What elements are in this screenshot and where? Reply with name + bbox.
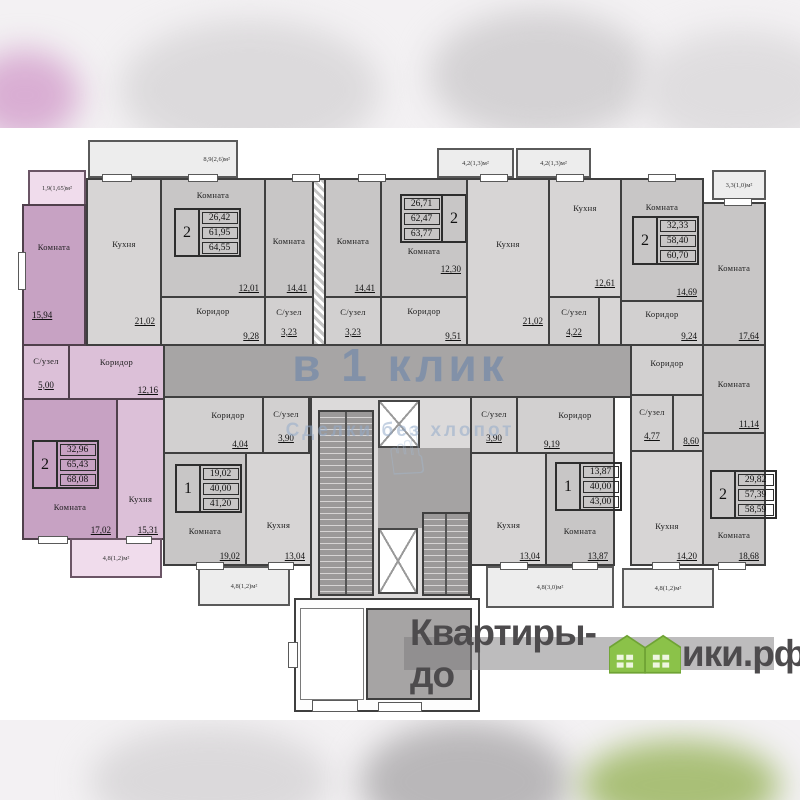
area-value: 63,77 xyxy=(404,228,440,240)
balcony-bottom-left: 4,8(1,2)м² xyxy=(198,566,290,606)
window-mark xyxy=(358,174,386,182)
room-label: Кухня xyxy=(88,239,160,249)
window-mark xyxy=(268,562,294,570)
room-area: 11,14 xyxy=(739,419,759,429)
balcony-area: 4,2(1,3)м² xyxy=(462,160,489,167)
apartment-spec-table: 1 19,02 40,00 41,20 xyxy=(175,464,242,513)
staircase-right xyxy=(422,512,470,596)
window-mark xyxy=(480,174,508,182)
room-label: Коридор xyxy=(382,306,466,316)
logo-text-suffix: ики.рф xyxy=(682,633,800,675)
area-value: 26,42 xyxy=(202,212,238,224)
room-area: 14,41 xyxy=(287,283,307,293)
pink-bath[interactable]: С/узел 5,00 xyxy=(22,344,70,400)
elevator-shaft-icon xyxy=(378,528,418,594)
area-value: 32,33 xyxy=(660,220,696,232)
apt-d-kitchen[interactable]: Кухня 13,04 xyxy=(245,452,312,566)
room-label: С/узел xyxy=(264,409,308,419)
room-label: С/узел xyxy=(550,307,598,317)
room-label: Комната xyxy=(704,379,764,389)
area-value: 58,59 xyxy=(738,504,774,516)
area-value: 58,40 xyxy=(660,235,696,247)
room-label: Кухня xyxy=(632,521,702,531)
balcony-area: 8,9(2,6)м² xyxy=(203,156,230,163)
area-value: 29,82 xyxy=(738,474,774,486)
area-value: 19,02 xyxy=(203,468,239,480)
room-label: Кухня xyxy=(472,520,545,530)
window-mark xyxy=(126,536,152,544)
apt-c-hall[interactable]: Коридор 9,24 xyxy=(620,300,704,346)
room-label: Комната xyxy=(24,502,116,512)
room-label: Комната xyxy=(24,242,84,252)
room-area: 17,02 xyxy=(91,525,111,535)
area-value: 40,00 xyxy=(203,483,239,495)
area-value: 62,47 xyxy=(404,213,440,225)
apt-a-kitchen[interactable]: Кухня 21,02 xyxy=(86,178,162,346)
balcony-bottom-right: 4,8(1,2)м² xyxy=(622,568,714,608)
floor-plan-page: 8,9(2,6)м² 4,2(1,3)м² 4,2(1,3)м² 3,3(1,0… xyxy=(0,0,800,800)
area-value: 41,20 xyxy=(203,498,239,510)
window-mark xyxy=(648,174,676,182)
balcony-area: 4,8(3,0)м² xyxy=(537,584,564,591)
apartment-spec-table: 2 32,33 58,40 60,70 xyxy=(632,216,699,265)
site-logo[interactable]: Квартиры-до ики.рф xyxy=(410,626,800,682)
room-label: Кухня xyxy=(118,494,163,504)
pink-room-2[interactable]: 2 32,96 65,43 68,08 Комната 17,02 xyxy=(22,398,118,540)
apartment-spec-table: 1 13,87 40,00 43,00 xyxy=(555,462,622,511)
balcony-area: 3,3(1,0)м² xyxy=(726,182,753,189)
room-label: Комната xyxy=(547,526,613,536)
room-label: Коридор xyxy=(162,306,264,316)
blurred-background-bottom xyxy=(0,716,800,800)
apartment-spec-table: 2 29,82 57,39 58,59 xyxy=(710,470,777,519)
apt-b-kitchen[interactable]: Кухня 21,02 xyxy=(466,178,550,346)
area-value: 61,95 xyxy=(202,227,238,239)
room-area: 8,60 xyxy=(683,436,699,446)
area-value: 57,39 xyxy=(738,489,774,501)
area-value: 13,87 xyxy=(583,466,619,478)
room-count: 2 xyxy=(34,442,56,487)
room-area: 3,23 xyxy=(266,327,312,337)
blurred-background-top xyxy=(0,0,800,128)
area-value: 68,08 xyxy=(60,474,96,486)
area-value: 40,00 xyxy=(583,481,619,493)
room-label: Комната xyxy=(382,246,466,256)
green-blur-blob xyxy=(580,740,780,800)
room-area: 9,24 xyxy=(681,331,697,341)
entrance-step xyxy=(378,702,422,712)
room-area: 12,16 xyxy=(138,385,158,395)
apt-c-room-2[interactable]: Комната 17,64 xyxy=(702,202,766,346)
window-mark xyxy=(724,198,752,206)
room-label: Комната xyxy=(162,190,264,200)
room-count: 2 xyxy=(634,218,656,263)
room-count: 2 xyxy=(443,196,465,241)
room-area: 19,02 xyxy=(220,551,240,561)
room-count: 2 xyxy=(176,210,198,255)
room-count: 1 xyxy=(557,464,579,509)
room-area: 12,30 xyxy=(441,264,461,274)
apt-c-kitchen[interactable]: Кухня 12,61 xyxy=(548,178,622,298)
window-mark xyxy=(500,562,528,570)
room-label: Комната xyxy=(326,236,380,246)
apt-b-room-2[interactable]: 2 26,71 62,47 63,77 Комната 12,30 xyxy=(380,178,468,298)
window-mark xyxy=(652,562,680,570)
balcony-pink-bottom: 4,8(1,2)м² xyxy=(70,538,162,578)
window-mark xyxy=(718,562,746,570)
room-area: 15,94 xyxy=(32,310,52,320)
window-mark xyxy=(572,562,598,570)
area-value: 64,55 xyxy=(202,242,238,254)
room-area: 21,02 xyxy=(523,316,543,326)
room-area: 5,00 xyxy=(24,380,68,390)
room-count: 2 xyxy=(712,472,734,517)
room-label: Комната xyxy=(704,263,764,273)
area-value: 65,43 xyxy=(60,459,96,471)
window-mark xyxy=(38,536,68,544)
apt-f-hall[interactable]: Коридор xyxy=(630,344,704,396)
green-houses-icon xyxy=(609,630,681,676)
room-label: С/узел xyxy=(472,409,516,419)
room-area: 18,68 xyxy=(739,551,759,561)
room-label: Комната xyxy=(622,202,702,212)
watermark-title: в 1 клик xyxy=(170,338,630,392)
room-label: Комната xyxy=(165,526,245,536)
apt-f-room-2[interactable]: 2 29,82 57,39 58,59 Комната 18,68 xyxy=(702,432,766,566)
room-label: С/узел xyxy=(24,356,68,366)
room-area: 14,20 xyxy=(677,551,697,561)
room-area: 21,02 xyxy=(135,316,155,326)
balcony-area: 4,8(1,2)м² xyxy=(103,555,130,562)
window-mark xyxy=(292,174,320,182)
room-label: Коридор xyxy=(194,410,262,420)
room-label: Коридор xyxy=(622,309,702,319)
window-mark xyxy=(188,174,218,182)
room-area: 15,31 xyxy=(138,525,158,535)
apt-f-bath[interactable]: С/узел 4,77 xyxy=(630,394,674,452)
apt-c-room-1[interactable]: Комната 2 32,33 58,40 60,70 14,69 xyxy=(620,178,704,302)
room-label: Кухня xyxy=(247,520,310,530)
window-mark xyxy=(556,174,584,182)
area-value: 60,70 xyxy=(660,250,696,262)
pink-hall[interactable]: Коридор 12,16 xyxy=(68,344,165,400)
area-value: 43,00 xyxy=(583,496,619,508)
apt-a-room-1[interactable]: Комната 2 26,42 61,95 64,55 12,01 xyxy=(160,178,266,298)
room-area: 4,77 xyxy=(632,431,672,441)
room-area: 13,04 xyxy=(285,551,305,561)
entrance-step xyxy=(312,700,358,712)
room-area: 12,61 xyxy=(595,278,615,288)
apt-f-kitchen[interactable]: Кухня 14,20 xyxy=(630,450,704,566)
balcony-top-right: 3,3(1,0)м² xyxy=(712,170,766,200)
room-area: 13,87 xyxy=(588,551,608,561)
apt-f-room-1[interactable]: Комната 11,14 xyxy=(702,344,766,434)
vestibule-room xyxy=(300,608,364,700)
window-mark xyxy=(102,174,132,182)
pink-room-1[interactable]: Комната 15,94 xyxy=(22,204,86,346)
room-area: 14,41 xyxy=(355,283,375,293)
room-label: Комната xyxy=(704,530,764,540)
area-value: 26,71 xyxy=(404,198,440,210)
pink-kitchen[interactable]: Кухня 15,31 xyxy=(116,398,165,540)
balcony-area: 4,2(1,3)м² xyxy=(540,160,567,167)
apt-e-kitchen[interactable]: Кухня 13,04 xyxy=(470,452,547,566)
balcony-bottom-mid: 4,8(3,0)м² xyxy=(486,566,614,608)
balcony-area: 1,9(1,65)м² xyxy=(42,185,72,192)
apt-f-hall-extension[interactable]: 8,60 xyxy=(672,394,704,452)
area-value: 32,96 xyxy=(60,444,96,456)
room-count: 1 xyxy=(177,466,199,511)
room-area: 4,22 xyxy=(550,327,598,337)
room-label: Комната xyxy=(266,236,312,246)
apt-b-room-1[interactable]: Комната 14,41 xyxy=(324,178,382,298)
room-label: Коридор xyxy=(537,410,613,420)
room-label: С/узел xyxy=(266,307,312,317)
apt-a-room-2[interactable]: Комната 14,41 xyxy=(264,178,314,298)
apartment-spec-table: 2 32,96 65,43 68,08 xyxy=(32,440,99,489)
apt-e-room[interactable]: 1 13,87 40,00 43,00 Комната 13,87 xyxy=(545,452,615,566)
apartment-spec-table: 2 26,71 62,47 63,77 xyxy=(400,194,467,243)
room-label: Коридор xyxy=(70,357,163,367)
apt-d-room[interactable]: 1 19,02 40,00 41,20 Комната 19,02 xyxy=(163,452,247,566)
balcony-area: 4,8(1,2)м² xyxy=(231,583,258,590)
window-mark xyxy=(18,252,26,290)
room-label: Кухня xyxy=(550,203,620,213)
room-label: Коридор xyxy=(632,358,702,368)
balcony-area: 4,8(1,2)м² xyxy=(655,585,682,592)
logo-text-prefix: Квартиры-до xyxy=(410,612,608,696)
pink-blur-blob xyxy=(0,50,80,128)
room-area: 13,04 xyxy=(520,551,540,561)
room-area: 14,69 xyxy=(677,287,697,297)
room-label: С/узел xyxy=(632,407,672,417)
room-area: 12,01 xyxy=(239,283,259,293)
room-area: 17,64 xyxy=(739,331,759,341)
room-label: С/узел xyxy=(326,307,380,317)
vestibule-door-mark xyxy=(288,642,298,668)
room-label: Кухня xyxy=(468,239,548,249)
balcony-top-long: 8,9(2,6)м² xyxy=(88,140,238,178)
apartment-spec-table: 2 26,42 61,95 64,55 xyxy=(174,208,241,257)
balcony-pink-top: 1,9(1,65)м² xyxy=(28,170,86,206)
window-mark xyxy=(196,562,224,570)
room-area: 3,23 xyxy=(326,327,380,337)
